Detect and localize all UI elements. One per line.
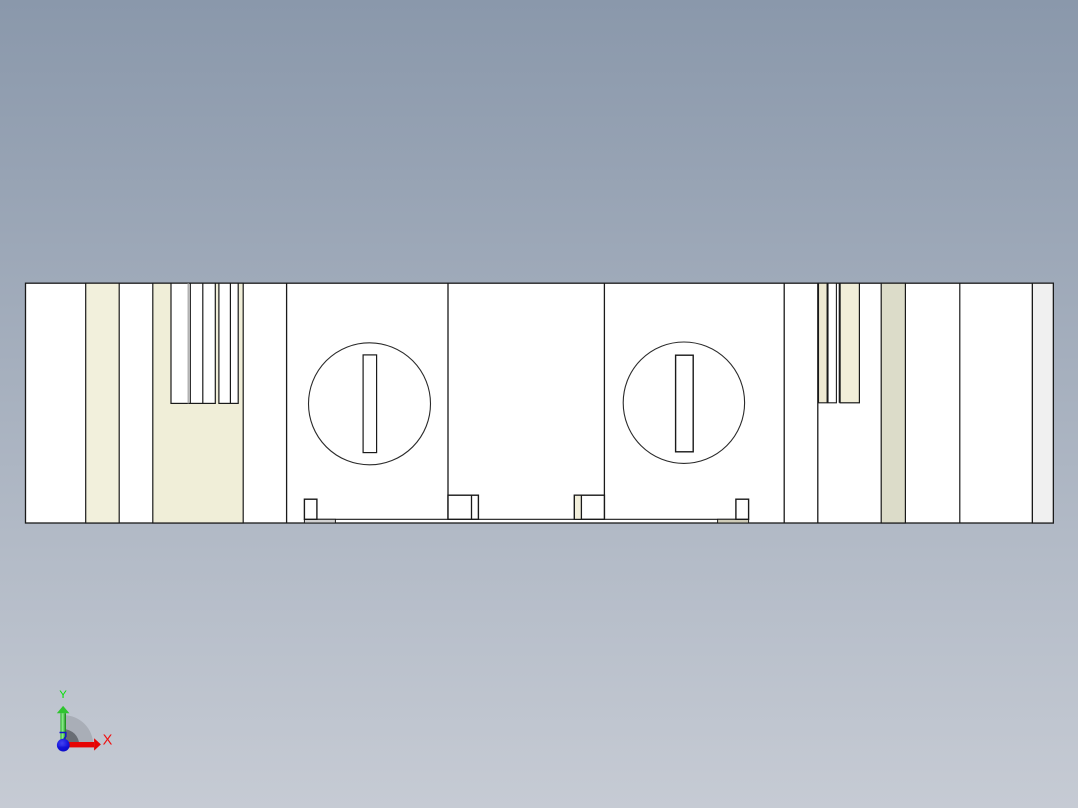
svg-text:X: X: [103, 733, 113, 749]
svg-text:Y: Y: [59, 689, 67, 701]
